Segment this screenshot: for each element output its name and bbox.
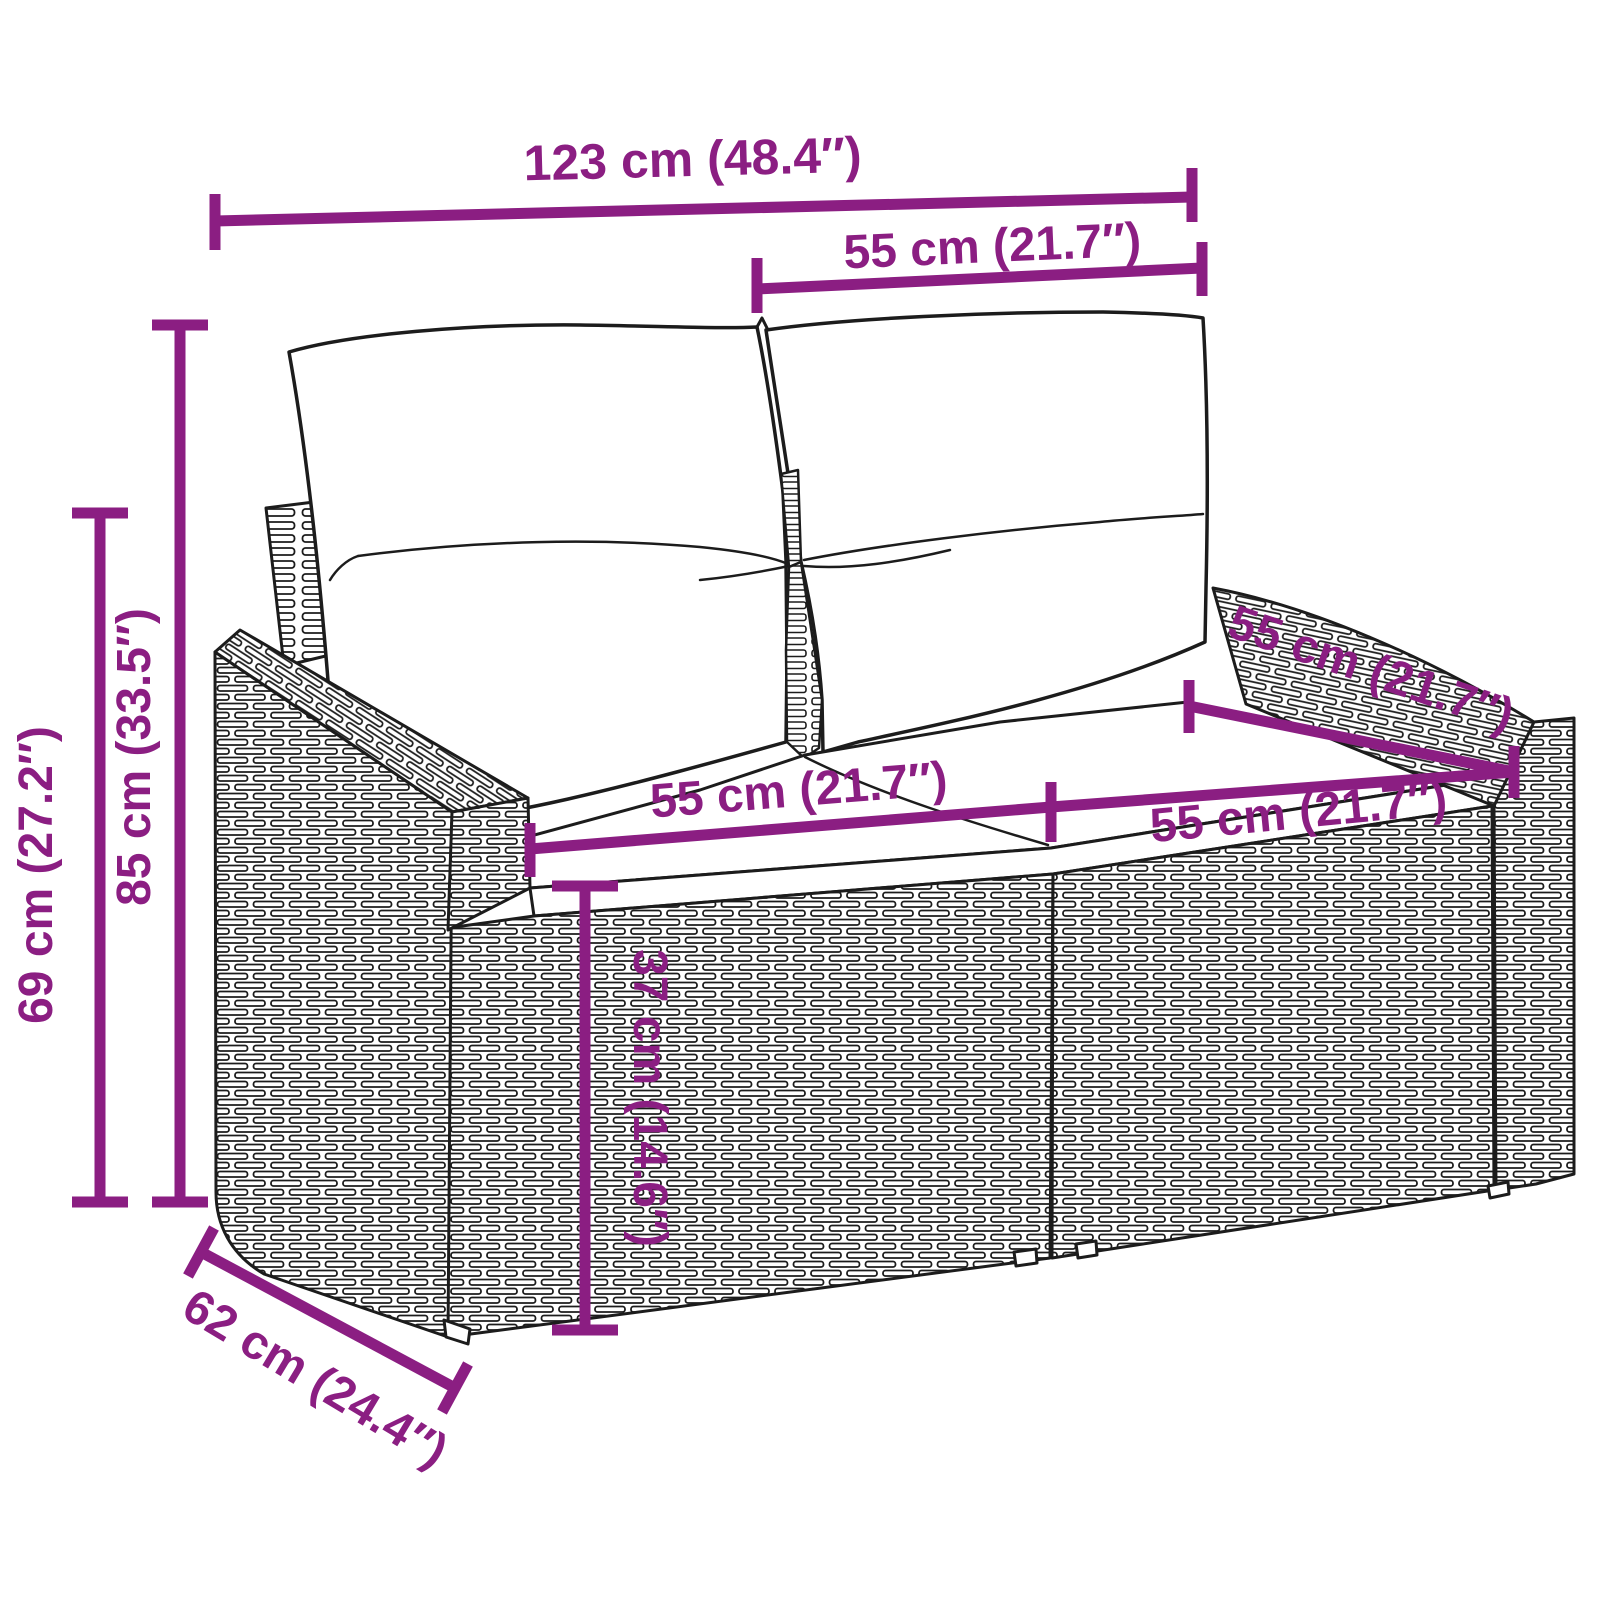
- sofa-dimension-drawing: 123 cm (48.4″) 55 cm (21.7″) 85 cm (33.5…: [0, 0, 1600, 1600]
- back-cushion-right: [757, 312, 1207, 752]
- dimension-backrest-section: 55 cm (21.7″): [757, 214, 1202, 313]
- sofa-body-front-right: [1052, 806, 1494, 1258]
- side-panel-right: [1494, 718, 1574, 1190]
- sofa-body-front-left: [448, 874, 1053, 1337]
- dimension-label-seat-base-height: 37 cm (14.6″): [623, 949, 676, 1247]
- dimension-total-height: 85 cm (33.5″): [108, 325, 208, 1202]
- dimension-diagram: 123 cm (48.4″) 55 cm (21.7″) 85 cm (33.5…: [0, 0, 1600, 1600]
- dimension-label-armrest-height: 69 cm (27.2″): [10, 726, 63, 1024]
- dimension-label-overall-width: 123 cm (48.4″): [523, 127, 862, 192]
- dimension-label-total-height: 85 cm (33.5″): [108, 608, 161, 906]
